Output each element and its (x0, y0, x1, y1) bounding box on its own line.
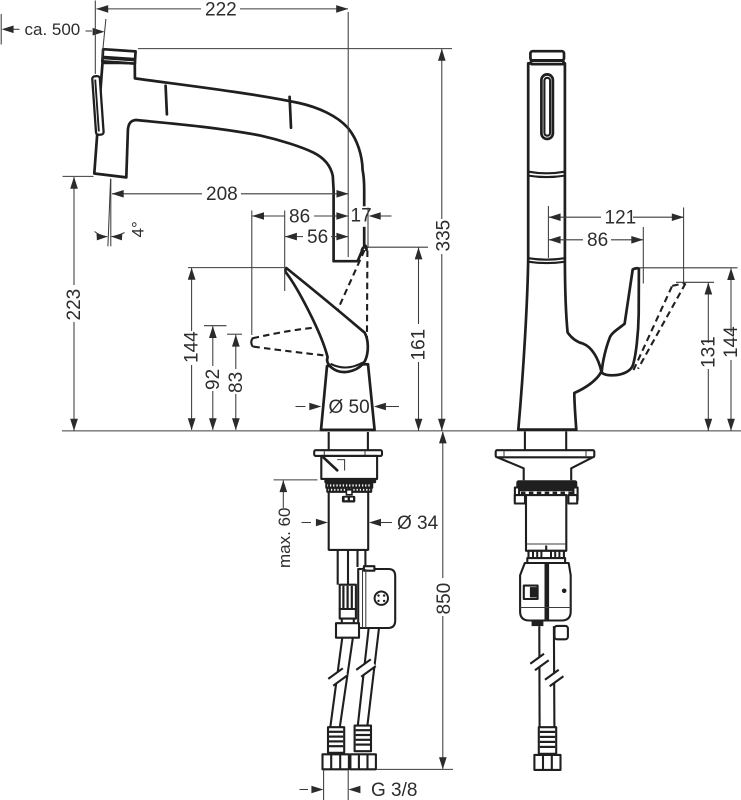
svg-text:max. 60: max. 60 (275, 508, 294, 568)
svg-text:131: 131 (698, 336, 719, 368)
svg-text:335: 335 (434, 220, 455, 252)
svg-text:86: 86 (289, 206, 310, 227)
svg-text:ca. 500: ca. 500 (25, 20, 81, 39)
svg-text:161: 161 (409, 329, 430, 361)
svg-text:144: 144 (182, 331, 203, 363)
svg-text:121: 121 (605, 208, 637, 229)
svg-text:Ø 50: Ø 50 (329, 397, 370, 418)
svg-text:144: 144 (721, 326, 741, 358)
svg-text:4°: 4° (129, 221, 148, 237)
svg-text:83: 83 (226, 372, 247, 393)
svg-text:850: 850 (434, 583, 455, 615)
svg-text:G 3/8: G 3/8 (371, 780, 417, 800)
svg-text:223: 223 (64, 289, 85, 321)
svg-text:56: 56 (307, 227, 328, 248)
svg-text:86: 86 (587, 230, 608, 251)
svg-text:Ø 34: Ø 34 (397, 513, 439, 534)
svg-text:92: 92 (203, 369, 224, 390)
svg-text:222: 222 (205, 0, 237, 20)
svg-text:208: 208 (206, 184, 238, 205)
